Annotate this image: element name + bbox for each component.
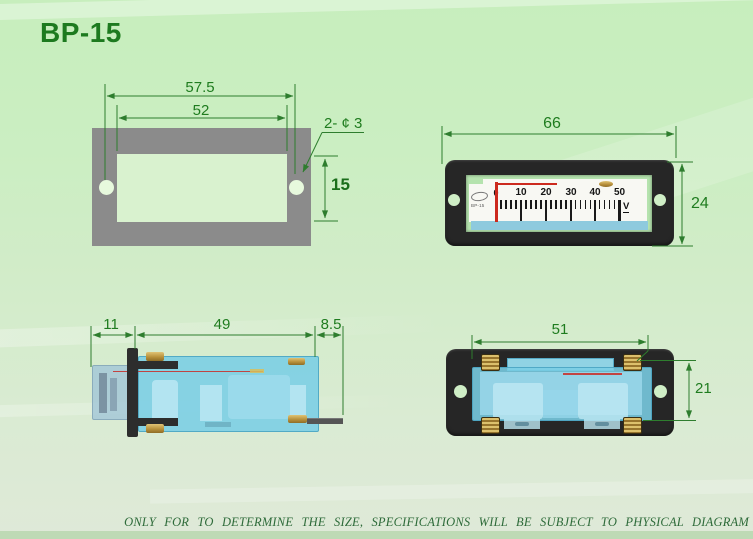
diagram-canvas: BP-15 57.5 52 2- ¢ 3 15 0 10 20 30 40 50… [0,0,753,539]
dim-rear-height: 21 [695,381,712,396]
rear-tab-slot [515,422,529,426]
rear-screw-bottom-right [623,417,642,434]
rear-bobbin-left [493,383,543,419]
rear-hole-left [454,385,467,398]
rear-screw-bottom-left [481,417,500,434]
dim-rear-width: 51 [552,322,569,337]
rear-center-column [543,390,578,418]
rear-screw-top-right [623,354,642,371]
rear-screw-top-left [481,354,500,371]
view-meter-rear: 51 21 [0,0,753,539]
rear-hole-right [654,385,667,398]
footer-note: ONLY FOR TO DETERMINE THE SIZE, SPECIFIC… [124,515,749,530]
rear-bobbin-right [578,383,628,419]
rear-tab-slot [595,422,609,426]
rear-pointer-line [563,373,622,375]
